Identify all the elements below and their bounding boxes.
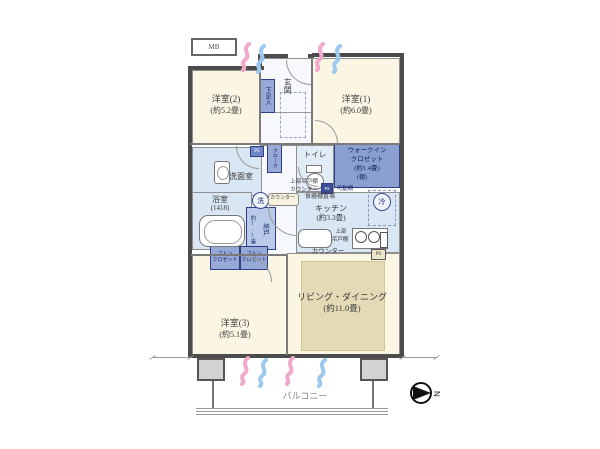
- washing-machine-icon: 洗: [252, 192, 269, 209]
- stove-burner-left: [355, 231, 367, 243]
- living-size: (約11.0畳): [307, 304, 377, 314]
- futon-closet-left: フトン クロゼット: [210, 246, 240, 270]
- compass-n-glyph: N: [432, 391, 441, 397]
- kitchen-shelf-space: 食器棚置場: [297, 194, 343, 201]
- ps-shaft-mid: PS: [321, 183, 333, 194]
- sink-icon: [298, 229, 332, 248]
- room-western3: [192, 255, 287, 356]
- airflow-blue-icon: [330, 44, 344, 74]
- airflow-pink-icon: [238, 356, 252, 386]
- kitchen-upper-cabinet-line2: 吊戸棚: [328, 237, 352, 243]
- balcony-pillar-left: [197, 358, 225, 381]
- kitchen-name: キッチン: [306, 204, 356, 213]
- wall-left: [188, 66, 192, 358]
- western1-size: (約6.0畳): [326, 106, 386, 115]
- wic-shelf: (棚): [348, 175, 376, 182]
- airflow-blue-icon: [315, 358, 329, 388]
- balcony-rail-3: [196, 414, 388, 415]
- shoe-cabinet-label: 下足入: [263, 87, 272, 105]
- cloak-cabinet: クローク: [267, 143, 282, 173]
- western2-name: 洋室(2): [198, 94, 254, 104]
- balcony-rail-1: [196, 408, 388, 409]
- storeroom-size: 約1.1畳: [249, 210, 255, 248]
- western1-name: 洋室(1): [328, 94, 384, 104]
- kitchen-size: (約3.3畳): [304, 214, 358, 223]
- balcony-post-left: [212, 381, 214, 408]
- floorplan-canvas: MB 下足入 クローク PS 約1.1畳 納戸 フトン クロゼット フトン クロ…: [0, 0, 600, 449]
- balcony-rail-2: [196, 411, 388, 412]
- movable-shelf-label: 可動棚: [333, 186, 357, 192]
- fridge-label: 冷: [379, 197, 386, 207]
- wic-line2: クロゼット: [344, 156, 390, 163]
- ps-shaft-kitchen: PS: [371, 249, 386, 260]
- living-name: リビング・ダイニング: [292, 292, 392, 302]
- bathtub-inner: [204, 220, 242, 244]
- ps-mid-label: PS: [324, 186, 329, 191]
- airflow-pink-icon: [239, 42, 253, 72]
- airflow-blue-icon: [256, 358, 270, 388]
- measure-tick: [433, 355, 439, 360]
- washer-label: 洗: [257, 196, 264, 206]
- ps-kitchen-label: PS: [376, 252, 382, 257]
- wic-line1: ウォークイン: [340, 147, 394, 154]
- kitchen-counter-label: カウンター: [304, 248, 352, 255]
- kitchen-upper-cabinet-line1: 上部: [331, 229, 351, 235]
- bathroom-name: 浴室: [204, 195, 236, 204]
- measure-line-left: [152, 357, 190, 358]
- airflow-pink-icon: [283, 356, 297, 386]
- stove-burner-right: [368, 231, 380, 243]
- toilet-label: トイレ: [300, 151, 330, 160]
- shoe-cabinet: 下足入: [260, 79, 275, 113]
- balcony-label: バルコニー: [275, 391, 335, 401]
- airflow-blue-icon: [254, 44, 268, 74]
- airflow-pink-icon: [313, 42, 327, 72]
- western3-name: 洋室(3): [207, 318, 263, 328]
- stove-grill: [380, 232, 388, 248]
- western3-size: (約5.1畳): [205, 330, 265, 339]
- entrance-label: 玄関: [283, 72, 292, 100]
- meter-box-label: MB: [191, 43, 237, 51]
- washroom-label: 洗面室: [221, 172, 261, 181]
- refrigerator-icon: 冷: [373, 193, 391, 211]
- partition-mid: [190, 143, 400, 145]
- balcony-post-right: [372, 381, 374, 408]
- wic-size: (約1.4畳): [341, 165, 393, 172]
- cloak-label: クローク: [271, 148, 278, 168]
- wall-right: [400, 53, 404, 358]
- bathroom-size: (1418): [202, 204, 238, 212]
- partition-west3-top: [191, 254, 287, 256]
- hall-counter-label: カウンター: [268, 196, 297, 202]
- balcony-pillar-right: [360, 358, 388, 381]
- western2-size: (約5.2畳): [196, 106, 256, 115]
- compass-icon: N: [408, 380, 446, 406]
- partition-west3-living: [286, 255, 288, 355]
- measure-line-right: [402, 357, 437, 358]
- futon-left-line2: クロゼット: [212, 258, 237, 264]
- storeroom-name: 納戸: [261, 215, 268, 243]
